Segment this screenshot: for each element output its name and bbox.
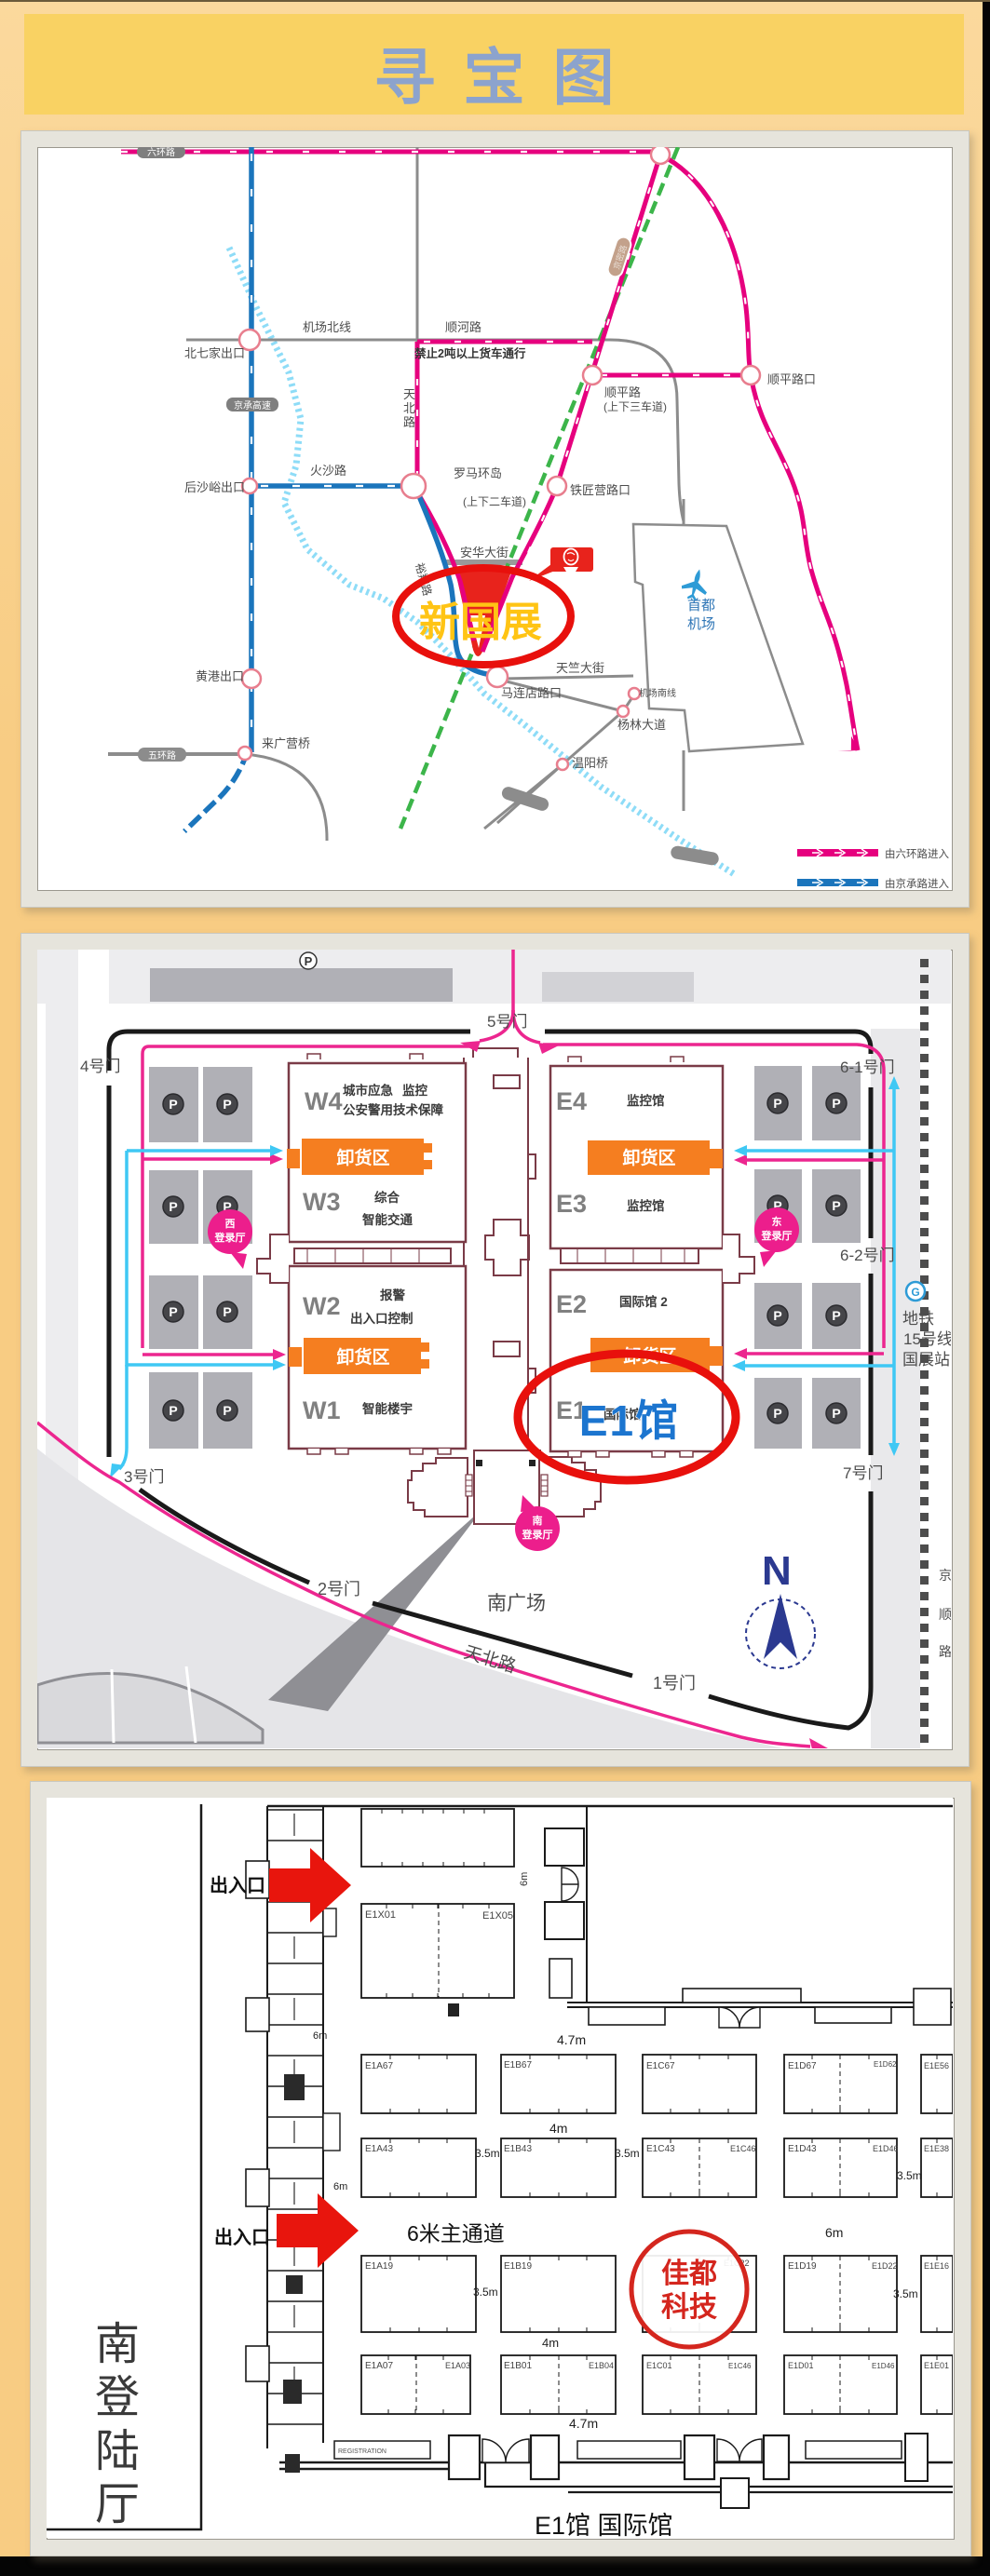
svg-text:6m: 6m: [825, 2225, 843, 2240]
svg-text:5号门: 5号门: [487, 1013, 527, 1031]
svg-text:3.5m: 3.5m: [615, 2147, 640, 2160]
svg-text:杨林大道: 杨林大道: [617, 718, 666, 732]
svg-text:E2: E2: [556, 1290, 587, 1318]
svg-text:E1B43: E1B43: [504, 2144, 532, 2154]
svg-text:国际馆 2: 国际馆 2: [619, 1294, 668, 1309]
svg-text:出入口: 出入口: [214, 2227, 270, 2248]
svg-text:3.5m: 3.5m: [475, 2147, 500, 2160]
svg-text:E1D67: E1D67: [788, 2061, 817, 2071]
svg-text:新国展: 新国展: [419, 600, 542, 645]
svg-text:W4: W4: [305, 1087, 343, 1115]
svg-text:W2: W2: [303, 1292, 341, 1320]
svg-text:P: P: [832, 1308, 840, 1323]
svg-text:京: 京: [939, 1568, 951, 1583]
svg-text:登录厅: 登录厅: [214, 1231, 246, 1244]
svg-text:卸货区: 卸货区: [622, 1147, 675, 1168]
svg-text:3号门: 3号门: [124, 1468, 164, 1486]
svg-text:E1A67: E1A67: [365, 2061, 393, 2071]
svg-text:南: 南: [95, 2320, 140, 2369]
svg-text:监控馆: 监控馆: [627, 1198, 665, 1213]
svg-text:监控: 监控: [402, 1083, 427, 1098]
svg-text:来广营桥: 来广营桥: [262, 736, 310, 750]
svg-text:六环路: 六环路: [147, 147, 175, 158]
svg-text:火沙路: 火沙路: [310, 464, 346, 478]
svg-text:马连店路口: 马连店路口: [501, 686, 562, 700]
svg-text:6m: 6m: [333, 2181, 347, 2192]
svg-text:科技: 科技: [661, 2292, 717, 2323]
svg-text:(上下三车道): (上下三车道): [603, 399, 667, 413]
svg-text:首都: 首都: [687, 598, 715, 614]
svg-text:天北路: 天北路: [403, 387, 415, 429]
svg-text:综合: 综合: [374, 1190, 400, 1205]
svg-text:城市应急: 城市应急: [343, 1083, 393, 1098]
svg-text:铁匠营路口: 铁匠营路口: [570, 483, 631, 497]
svg-text:由京承路进入: 由京承路进入: [885, 877, 949, 889]
svg-text:登: 登: [95, 2373, 140, 2422]
svg-text:P: P: [169, 1097, 177, 1112]
svg-text:厅: 厅: [95, 2480, 140, 2529]
svg-text:顺: 顺: [939, 1607, 951, 1622]
svg-text:3.5m: 3.5m: [473, 2286, 498, 2299]
svg-text:出入口控制: 出入口控制: [350, 1311, 414, 1326]
svg-text:P: P: [223, 1304, 231, 1319]
svg-text:6-1号门: 6-1号门: [840, 1059, 895, 1076]
svg-text:P: P: [773, 1406, 781, 1421]
svg-text:E1B19: E1B19: [504, 2261, 532, 2272]
svg-text:罗马环岛: 罗马环岛: [454, 466, 502, 480]
svg-text:出入口: 出入口: [210, 1875, 265, 1896]
svg-text:E1C01: E1C01: [646, 2361, 672, 2370]
svg-text:W3: W3: [303, 1188, 341, 1216]
svg-text:E1D19: E1D19: [788, 2261, 817, 2272]
svg-text:登录厅: 登录厅: [522, 1528, 553, 1541]
svg-text:陆: 陆: [95, 2427, 140, 2476]
svg-text:P: P: [773, 1096, 781, 1111]
svg-text:E1D62: E1D62: [874, 2060, 897, 2069]
svg-text:京承高速: 京承高速: [234, 399, 271, 411]
svg-text:N: N: [762, 1548, 792, 1594]
svg-text:6m: 6m: [519, 1872, 530, 1886]
svg-text:E1D46: E1D46: [872, 2362, 895, 2370]
svg-text:卸货区: 卸货区: [336, 1147, 389, 1168]
svg-text:E1馆 国际馆: E1馆 国际馆: [535, 2512, 673, 2538]
svg-text:公安警用技术保障: 公安警用技术保障: [343, 1102, 443, 1117]
svg-text:E3: E3: [556, 1190, 587, 1218]
svg-text:4号门: 4号门: [80, 1058, 120, 1075]
svg-text:P: P: [832, 1406, 840, 1421]
svg-text:E1D46: E1D46: [873, 2144, 899, 2153]
svg-text:顺平路口: 顺平路口: [767, 372, 816, 386]
svg-text:7号门: 7号门: [843, 1464, 883, 1482]
svg-text:W1: W1: [303, 1396, 341, 1424]
svg-text:路: 路: [939, 1644, 951, 1659]
svg-text:卸货区: 卸货区: [336, 1346, 389, 1368]
svg-text:E1D01: E1D01: [788, 2361, 814, 2370]
svg-text:E1C46: E1C46: [728, 2362, 752, 2370]
svg-text:4m: 4m: [542, 2336, 559, 2350]
svg-text:E1E16: E1E16: [924, 2261, 949, 2271]
svg-text:G: G: [911, 1286, 919, 1299]
svg-text:E1X05: E1X05: [482, 1910, 513, 1922]
svg-text:温阳桥: 温阳桥: [572, 756, 608, 770]
svg-text:E1C43: E1C43: [646, 2144, 675, 2154]
svg-text:地铁: 地铁: [902, 1310, 934, 1328]
svg-text:1号门: 1号门: [653, 1674, 696, 1693]
svg-text:E1B67: E1B67: [504, 2060, 532, 2070]
svg-text:天竺大街: 天竺大街: [556, 661, 604, 675]
svg-text:E1X01: E1X01: [365, 1909, 396, 1921]
svg-text:E1馆: E1馆: [579, 1396, 680, 1445]
svg-text:P: P: [223, 1403, 231, 1418]
svg-text:监控馆: 监控馆: [627, 1093, 665, 1108]
svg-text:(上下二车道): (上下二车道): [463, 494, 526, 508]
svg-text:机场北线: 机场北线: [303, 320, 351, 334]
svg-text:P: P: [169, 1304, 177, 1319]
svg-text:E1D22: E1D22: [872, 2261, 898, 2271]
svg-text:E1E56: E1E56: [924, 2061, 949, 2070]
svg-text:E1C67: E1C67: [646, 2061, 675, 2071]
svg-text:E1E01: E1E01: [924, 2361, 949, 2370]
svg-text:E4: E4: [556, 1087, 587, 1115]
svg-text:机场南线: 机场南线: [639, 687, 676, 699]
svg-text:佳都: 佳都: [661, 2259, 717, 2289]
svg-text:由六环路进入: 由六环路进入: [885, 847, 949, 860]
svg-text:机场: 机场: [687, 616, 715, 632]
svg-text:东: 东: [772, 1215, 782, 1228]
svg-text:P: P: [832, 1096, 840, 1111]
svg-text:E1B01: E1B01: [504, 2361, 532, 2371]
svg-text:黄港出口: 黄港出口: [196, 669, 244, 683]
svg-text:五环路: 五环路: [148, 749, 176, 762]
svg-text:E1B04: E1B04: [589, 2361, 614, 2370]
svg-text:3.5m: 3.5m: [893, 2287, 918, 2300]
svg-text:国展站: 国展站: [902, 1351, 950, 1369]
svg-text:P: P: [223, 1097, 231, 1112]
svg-text:登录厅: 登录厅: [761, 1229, 793, 1242]
svg-text:智能交通: 智能交通: [362, 1212, 413, 1227]
svg-text:E1A19: E1A19: [365, 2261, 393, 2272]
svg-text:E1C46: E1C46: [730, 2144, 756, 2153]
svg-text:南广场: 南广场: [487, 1593, 546, 1614]
svg-text:6-2号门: 6-2号门: [840, 1247, 895, 1264]
svg-text:顺平路: 顺平路: [604, 385, 641, 399]
svg-text:E1A07: E1A07: [365, 2361, 393, 2371]
svg-text:REGISTRATION: REGISTRATION: [338, 2448, 387, 2455]
svg-text:4.7m: 4.7m: [557, 2032, 586, 2047]
svg-text:E1E38: E1E38: [924, 2144, 949, 2153]
svg-text:西: 西: [225, 1218, 236, 1230]
svg-text:3.5m: 3.5m: [897, 2169, 922, 2182]
svg-text:禁止2吨以上货车通行: 禁止2吨以上货车通行: [414, 346, 526, 360]
svg-text:6m: 6m: [313, 2030, 327, 2042]
svg-text:P: P: [169, 1199, 177, 1214]
svg-text:北七家出口: 北七家出口: [184, 346, 245, 360]
svg-text:4.7m: 4.7m: [569, 2416, 598, 2431]
svg-text:P: P: [169, 1403, 177, 1418]
svg-text:南: 南: [533, 1514, 543, 1527]
svg-text:2号门: 2号门: [318, 1580, 360, 1598]
svg-text:报警: 报警: [380, 1288, 405, 1302]
svg-text:E1D43: E1D43: [788, 2144, 817, 2154]
svg-text:6米主通道: 6米主通道: [407, 2221, 505, 2246]
svg-text:P: P: [773, 1308, 781, 1323]
svg-text:4m: 4m: [549, 2121, 567, 2136]
svg-text:后沙峪出口: 后沙峪出口: [184, 480, 245, 494]
svg-text:顺河路: 顺河路: [445, 320, 481, 334]
svg-text:E1A43: E1A43: [365, 2144, 393, 2154]
svg-text:15号线: 15号线: [903, 1330, 951, 1348]
svg-text:E1A03: E1A03: [445, 2361, 470, 2370]
svg-text:P: P: [832, 1198, 840, 1213]
svg-text:智能楼宇: 智能楼宇: [362, 1401, 413, 1416]
svg-text:安华大街: 安华大街: [460, 546, 509, 560]
svg-text:P: P: [305, 954, 313, 968]
